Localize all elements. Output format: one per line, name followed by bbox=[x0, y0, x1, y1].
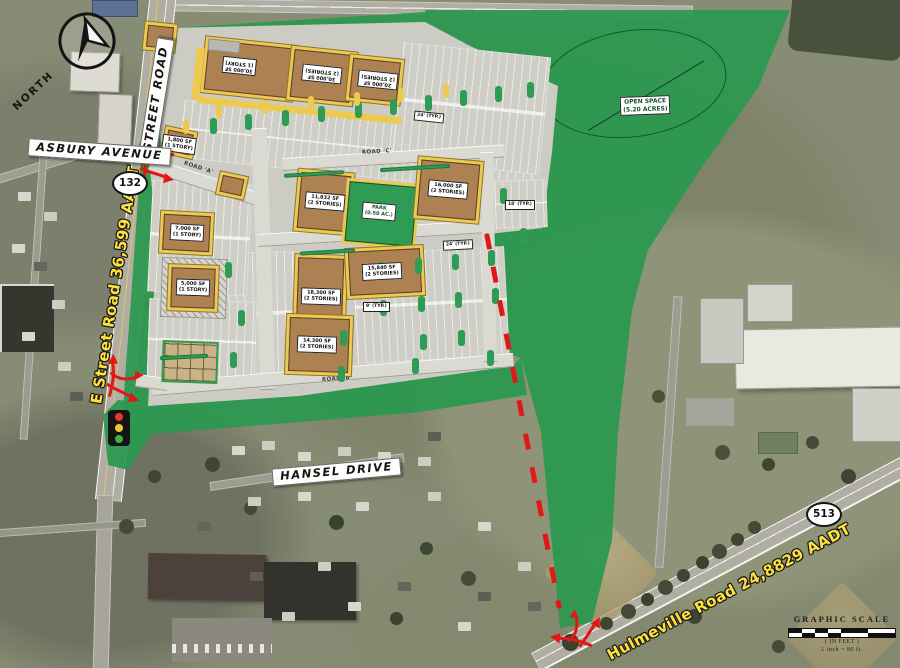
label-park: PARK(0.50 AC.) bbox=[361, 202, 396, 221]
hansel-drive-banner: HANSEL DRIVE bbox=[271, 457, 401, 486]
label-south-2: 15,840 SF(2 STORIES) bbox=[362, 262, 403, 281]
traffic-signal-icon bbox=[108, 410, 130, 446]
school-wing bbox=[852, 388, 900, 442]
tennis-courts bbox=[758, 432, 798, 454]
label-west-2: 5,000 SF(1 STORY) bbox=[176, 278, 211, 296]
southwest-street bbox=[0, 519, 146, 537]
parking-islands-yellow bbox=[0, 0, 6, 14]
school-wing bbox=[700, 298, 744, 364]
graphic-scale-bar bbox=[788, 628, 896, 638]
label-center-1: 11,832 SF(2 STORIES) bbox=[304, 191, 345, 211]
aerial-parking-lot bbox=[172, 618, 272, 662]
open-space-label: OPEN SPACE(5.20 ACRES) bbox=[620, 95, 671, 116]
garden-trellis bbox=[161, 340, 218, 384]
aerial-strip-mall bbox=[148, 553, 267, 601]
label-south-3: 14,300 SF(2 STORIES) bbox=[297, 335, 337, 353]
school-access-road bbox=[655, 296, 683, 568]
school-parking bbox=[686, 398, 734, 426]
route-513-shield: 513 bbox=[806, 502, 842, 527]
aerial-building-dark bbox=[0, 284, 54, 352]
label-anchor-1: 30,000 SF(1 STORY) bbox=[221, 56, 257, 76]
tree-hedge bbox=[787, 0, 900, 62]
label-south-1: 18,300 SF(2 STORIES) bbox=[301, 287, 341, 305]
aerial-building bbox=[97, 93, 133, 146]
route-132-shield: 132 bbox=[112, 171, 148, 196]
label-center-2: 16,000 SF(2 STORIES) bbox=[427, 179, 468, 199]
school-main-building bbox=[734, 327, 900, 390]
dimension-note: 18' (TYP.) bbox=[505, 200, 535, 210]
label-west-1: 7,000 SF(1 STORY) bbox=[170, 223, 205, 241]
aerial-warehouse bbox=[264, 562, 356, 620]
dimension-note: 9' (TYP.) bbox=[363, 302, 390, 312]
site-plan-map: OPEN SPACE(5.20 ACRES) ROAD 'A' ROAD 'C'… bbox=[0, 0, 900, 668]
dimension-note: 24' (TYP.) bbox=[443, 239, 473, 250]
graphic-scale-title: GRAPHIC SCALE bbox=[786, 614, 898, 625]
north-label: NORTH bbox=[11, 70, 56, 113]
graphic-scale-ratio: 1 inch = 80 ft. bbox=[786, 646, 898, 655]
graphic-scale: GRAPHIC SCALE ( IN FEET ) 1 inch = 80 ft… bbox=[786, 614, 898, 655]
school-wing bbox=[747, 284, 793, 322]
